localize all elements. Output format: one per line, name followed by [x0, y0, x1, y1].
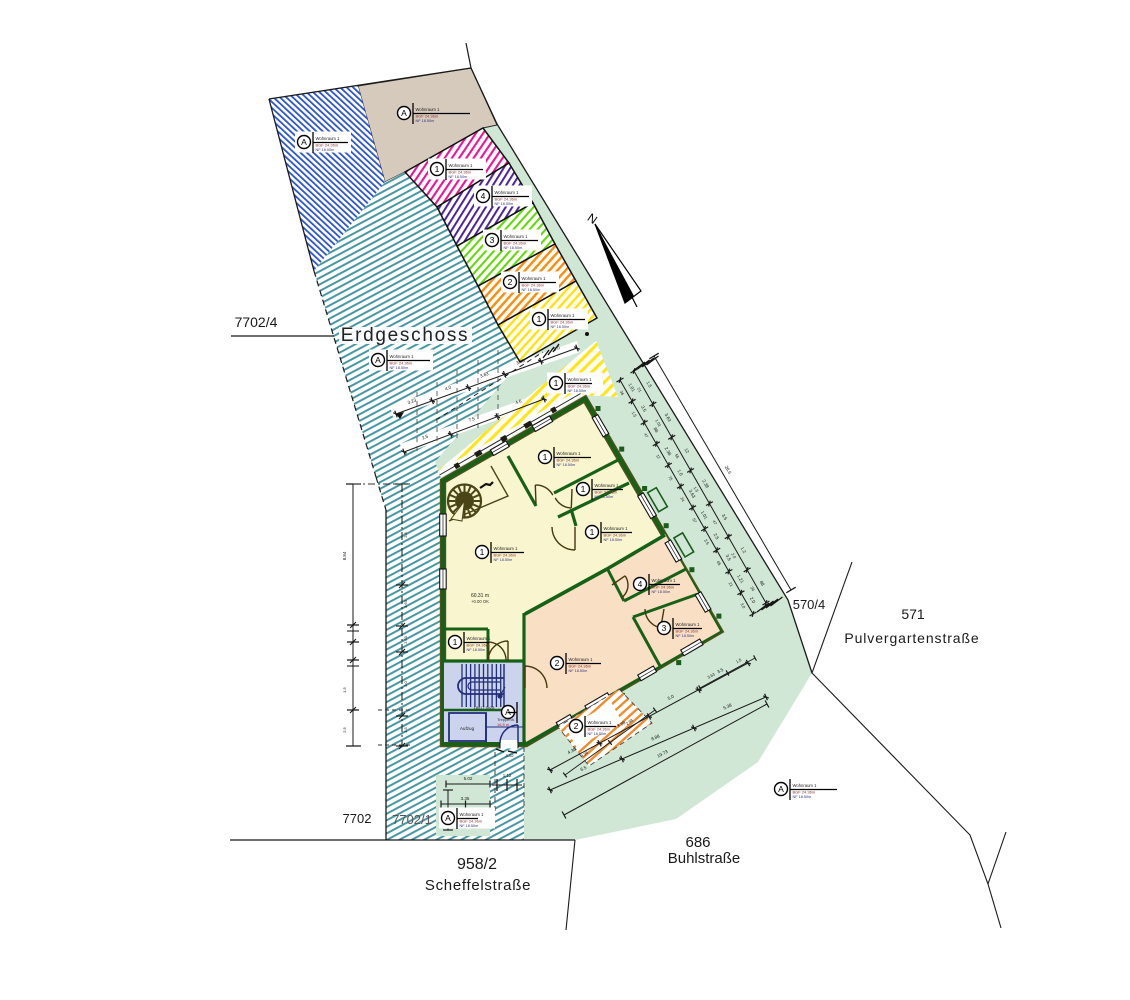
svg-text:1: 1: [537, 314, 542, 324]
svg-text:1.12: 1.12: [503, 773, 512, 778]
svg-text:BGF 24.36m: BGF 24.36m: [522, 283, 545, 288]
svg-text:2: 2: [574, 721, 579, 731]
svg-text:3.35: 3.35: [461, 796, 470, 801]
svg-text:BGF 24.36m: BGF 24.36m: [652, 585, 675, 590]
svg-text:3: 3: [490, 235, 495, 245]
svg-text:BGF 24.36m: BGF 24.36m: [504, 241, 527, 246]
svg-text:8.84: 8.84: [342, 551, 347, 560]
svg-text:BGF 24.36m: BGF 24.36m: [494, 553, 517, 558]
svg-text:686: 686: [685, 834, 710, 851]
svg-text:BGF 24.36m: BGF 24.36m: [793, 790, 816, 795]
svg-text:BGF 24.36m: BGF 24.36m: [557, 458, 580, 463]
svg-text:A: A: [445, 813, 451, 823]
svg-text:BGF 24.36m: BGF 24.36m: [390, 361, 413, 366]
svg-text:NF 18.50m: NF 18.50m: [604, 538, 623, 542]
svg-text:NF 18.50m: NF 18.50m: [390, 366, 409, 370]
svg-text:570/4: 570/4: [793, 597, 826, 612]
svg-text:Wohnraum 1: Wohnraum 1: [557, 451, 582, 456]
svg-text:3: 3: [662, 623, 667, 633]
svg-text:Wohnraum 1: Wohnraum 1: [449, 163, 474, 168]
svg-text:NF 18.50m: NF 18.50m: [557, 463, 576, 467]
svg-text:2.5: 2.5: [342, 726, 347, 732]
svg-text:Wohnraum 1: Wohnraum 1: [522, 276, 547, 281]
svg-text:7702: 7702: [343, 811, 372, 826]
svg-text:3.63: 3.63: [403, 599, 408, 608]
svg-text:Wohnraum 1: Wohnraum 1: [495, 190, 520, 195]
svg-text:4: 4: [481, 191, 486, 201]
svg-text:1: 1: [435, 164, 440, 174]
svg-text:Scheffelstraße: Scheffelstraße: [425, 877, 531, 894]
svg-text:BGF 24.36m: BGF 24.36m: [568, 384, 591, 389]
svg-text:BGF 24.36m: BGF 24.36m: [595, 490, 618, 495]
svg-text:NF 18.50m: NF 18.50m: [416, 119, 435, 123]
svg-text:2: 2: [508, 277, 513, 287]
svg-text:NF 18.50m: NF 18.50m: [522, 288, 541, 292]
svg-text:Wohnraum 1: Wohnraum 1: [504, 234, 529, 239]
svg-text:+0.00 OK: +0.00 OK: [471, 599, 489, 604]
svg-text:Wohnraum 1: Wohnraum 1: [494, 546, 519, 551]
svg-text:Wohnraum 1: Wohnraum 1: [568, 377, 593, 382]
svg-text:Wohnraum 1: Wohnraum 1: [676, 622, 701, 627]
svg-text:Wohnraum 1: Wohnraum 1: [569, 657, 594, 662]
svg-text:Wohnraum 1: Wohnraum 1: [416, 107, 441, 112]
svg-text:-0.02: -0.02: [504, 753, 514, 758]
svg-text:BGF 24.36m: BGF 24.36m: [604, 533, 627, 538]
svg-text:NF 18.50m: NF 18.50m: [595, 495, 614, 499]
svg-text:NF 18.50m: NF 18.50m: [316, 148, 335, 152]
svg-text:2: 2: [555, 658, 560, 668]
svg-text:NF 18.50m: NF 18.50m: [504, 246, 523, 250]
svg-text:18x17.5x28: 18x17.5x28: [474, 705, 495, 710]
svg-text:4: 4: [638, 579, 643, 589]
svg-text:2.63: 2.63: [403, 635, 408, 644]
svg-text:3.0: 3.0: [403, 680, 408, 686]
svg-text:16.5 m: 16.5 m: [497, 722, 510, 727]
svg-text:BGF 24.36m: BGF 24.36m: [569, 664, 592, 669]
svg-text:NF 18.50m: NF 18.50m: [652, 590, 671, 594]
svg-text:Wohnraum 1: Wohnraum 1: [588, 720, 613, 725]
svg-text:NF 18.50m: NF 18.50m: [494, 558, 513, 562]
svg-text:Buhlstraße: Buhlstraße: [668, 850, 741, 867]
svg-text:Pulvergartenstraße: Pulvergartenstraße: [844, 630, 979, 646]
svg-text:Erdgeschoss: Erdgeschoss: [341, 325, 470, 346]
svg-text:A: A: [301, 137, 307, 147]
svg-text:BGF 24.36m: BGF 24.36m: [551, 320, 574, 325]
svg-text:A: A: [375, 355, 381, 365]
svg-text:7702/1: 7702/1: [392, 812, 432, 827]
svg-text:NF 18.50m: NF 18.50m: [569, 669, 588, 673]
svg-text:Wohnraum 1: Wohnraum 1: [793, 783, 818, 788]
svg-text:Wohnraum 1: Wohnraum 1: [390, 354, 415, 359]
svg-text:1: 1: [581, 484, 586, 494]
svg-text:NF 18.50m: NF 18.50m: [467, 648, 486, 652]
svg-text:1: 1: [543, 452, 548, 462]
svg-text:NF 18.50m: NF 18.50m: [676, 634, 695, 638]
svg-text:Aufzug: Aufzug: [460, 726, 475, 731]
svg-text:NF 18.50m: NF 18.50m: [551, 325, 570, 329]
svg-text:Wohnraum 1: Wohnraum 1: [652, 578, 677, 583]
svg-text:7702/4: 7702/4: [235, 314, 278, 330]
svg-text:Wohnraum 1: Wohnraum 1: [604, 526, 629, 531]
svg-text:1: 1: [554, 378, 559, 388]
svg-text:Wohnraum 1: Wohnraum 1: [460, 812, 485, 817]
svg-text:BGF 24.36m: BGF 24.36m: [449, 170, 472, 175]
svg-text:1.5: 1.5: [342, 686, 347, 692]
svg-text:NF 18.50m: NF 18.50m: [460, 824, 479, 828]
svg-text:BGF 24.36m: BGF 24.36m: [316, 143, 339, 148]
svg-text:Wohnraum 1: Wohnraum 1: [316, 136, 341, 141]
svg-text:1: 1: [480, 547, 485, 557]
svg-text:1: 1: [453, 637, 458, 647]
svg-text:1.5: 1.5: [403, 726, 408, 732]
svg-text:571: 571: [901, 606, 925, 622]
svg-text:A: A: [401, 108, 407, 118]
svg-text:BGF 24.36m: BGF 24.36m: [467, 643, 490, 648]
svg-text:1: 1: [590, 527, 595, 537]
svg-text:BGF 24.36m: BGF 24.36m: [460, 819, 483, 824]
svg-text:5.02: 5.02: [464, 776, 473, 781]
svg-text:BGF 24.36m: BGF 24.36m: [588, 727, 611, 732]
svg-text:Wohnraum 1: Wohnraum 1: [595, 483, 620, 488]
svg-text:NF 18.50m: NF 18.50m: [568, 389, 587, 393]
svg-text:Wohnraum 1: Wohnraum 1: [551, 313, 576, 318]
svg-text:NF 18.50m: NF 18.50m: [449, 175, 468, 179]
svg-text:NF 18.50m: NF 18.50m: [495, 202, 514, 206]
svg-text:958/2: 958/2: [457, 856, 497, 873]
svg-text:BGF 24.36m: BGF 24.36m: [416, 114, 439, 119]
svg-text:NF 18.50m: NF 18.50m: [793, 795, 812, 799]
svg-text:BGF 24.36m: BGF 24.36m: [495, 197, 518, 202]
svg-text:2.5: 2.5: [403, 531, 408, 537]
svg-text:BGF 24.36m: BGF 24.36m: [676, 629, 699, 634]
svg-text:NF 18.50m: NF 18.50m: [588, 732, 607, 736]
svg-text:A: A: [778, 784, 784, 794]
svg-text:Wohnraum 1: Wohnraum 1: [467, 636, 492, 641]
